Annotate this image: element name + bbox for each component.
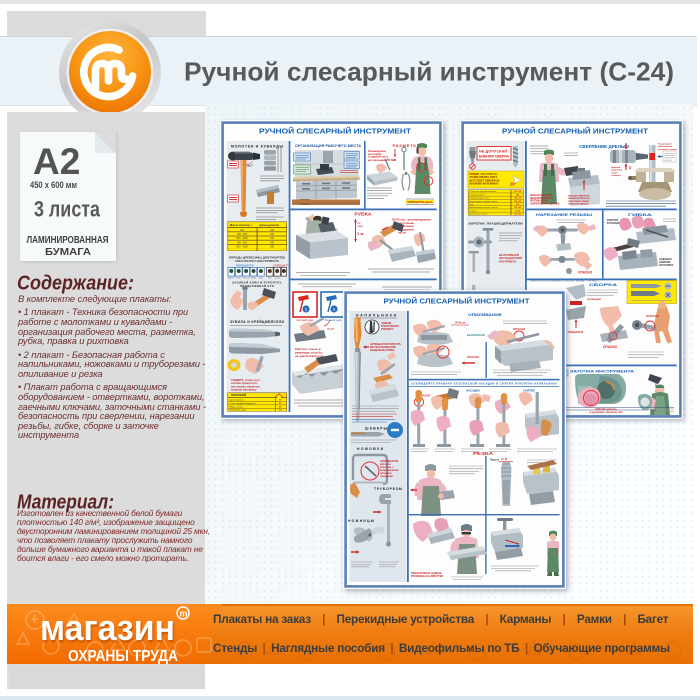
- svg-text:800 - 1000: 800 - 1000: [236, 237, 248, 240]
- svg-text:Кистевой удар: Кистевой удар: [297, 319, 314, 322]
- svg-text:МОЛОТКИ И КУВАЛДЫ: МОЛОТКИ И КУВАЛДЫ: [231, 145, 283, 149]
- svg-text:116-118: 116-118: [514, 191, 522, 193]
- svg-text:СЛЕСАРНОГО ИНСТРУМЕНТА: СЛЕСАРНОГО ИНСТРУМЕНТА: [235, 259, 280, 263]
- svg-text:Локтевой удар: Локтевой удар: [325, 319, 342, 322]
- svg-text:ОПАСНО: ОПАСНО: [467, 355, 480, 359]
- svg-text:Нержавеющая сталь: Нержавеющая сталь: [470, 198, 489, 200]
- svg-text:в рукавицах, перчатках или: в рукавицах, перчатках или: [590, 411, 623, 414]
- svg-text:полотном с: полотном с: [380, 467, 394, 469]
- svg-text:Масса молотка, г: Масса молотка, г: [230, 223, 253, 227]
- svg-text:Стальное литьё: Стальное литьё: [470, 194, 486, 196]
- svg-text:ВЫПОЛНЯЙ: ВЫПОЛНЯЙ: [231, 394, 246, 397]
- svg-text:ЗАТОЧКА ИНСТРУМЕНТА: ЗАТОЧКА ИНСТРУМЕНТА: [570, 370, 634, 374]
- svg-text:Алюминиевые сплавы, баббит: Алюминиевые сплавы, баббит: [470, 206, 499, 209]
- svg-text:320: 320: [270, 233, 275, 236]
- svg-text:БУМАГА: БУМАГА: [45, 246, 91, 258]
- svg-text:ЛАМИНИРОВАННАЯ: ЛАМИНИРОВАННАЯ: [27, 234, 109, 246]
- svg-text:НЕ ДОПУСКАЙ: НЕ ДОПУСКАЙ: [479, 150, 507, 154]
- svg-text:90°: 90°: [247, 163, 253, 168]
- svg-text:ИЛИ ПЛОХО ЗАКРЕ-: ИЛИ ПЛОХО ЗАКРЕ-: [568, 200, 590, 203]
- svg-text:ЗАПРЕЩАЕТСЯ: ЗАПРЕЩАЕТСЯ: [273, 265, 291, 268]
- svg-text:ТРУБОРЕЗЫ: ТРУБОРЕЗЫ: [374, 487, 402, 491]
- svg-text:РАБОТАЙ: РАБОТАЙ: [607, 219, 618, 222]
- svg-text:НОЖОВКИ: НОЖОВКИ: [357, 447, 384, 451]
- svg-text:НАРЕЗАНИЕ РЕЗЬБЫ: НАРЕЗАНИЕ РЕЗЬБЫ: [536, 213, 592, 217]
- svg-text:НЕЗАКРЕПЛЕННУЮ: НЕЗАКРЕПЛЕННУЮ: [530, 197, 553, 200]
- svg-text:ВОРОТКИ, ПЛАШКОДЕРЖАТЕЛИ: ВОРОТКИ, ПЛАШКОДЕРЖАТЕЛИ: [469, 222, 524, 226]
- svg-text:Не допускай: Не допускай: [658, 143, 672, 146]
- svg-text:Ручной слесарный инструмент (С: Ручной слесарный инструмент (С-24): [184, 57, 674, 87]
- svg-text:выкрошенными: выкрошенными: [380, 470, 399, 472]
- svg-text:Магниевые сплавы: Магниевые сплавы: [470, 213, 488, 215]
- svg-text:ЗАПРЕЩАЕТСЯ ударять: ЗАПРЕЩАЕТСЯ ударять: [407, 201, 434, 204]
- svg-text:450 х 600 мм: 450 х 600 мм: [30, 180, 77, 191]
- svg-text:люнет: люнет: [611, 172, 619, 174]
- svg-text:НОЖНИЦЫ: НОЖНИЦЫ: [348, 519, 374, 523]
- svg-text:Надевай: Надевай: [611, 166, 621, 169]
- svg-text:10-15: 10-15: [501, 458, 508, 461]
- svg-text:до пальцев 20 мм: до пальцев 20 мм: [368, 158, 397, 162]
- svg-text:Граб: Граб: [259, 277, 263, 279]
- svg-text:СБОРКА: СБОРКА: [589, 282, 617, 287]
- svg-text:ШАВЕРЫ: ШАВЕРЫ: [365, 427, 388, 431]
- svg-text:РУБКА: РУБКА: [355, 212, 372, 217]
- svg-text:БЕЗОПАСНО: БЕЗОПАСНО: [467, 333, 486, 337]
- svg-text:ЗАПРЕЩАЕТСЯ РАБОТАТЬ: ЗАПРЕЩАЕТСЯ РАБОТАТЬ: [370, 343, 401, 346]
- svg-text:650: 650: [270, 246, 275, 249]
- svg-text:Содержание:: Содержание:: [17, 273, 134, 295]
- svg-text:А2: А2: [33, 141, 80, 182]
- svg-text:Кизил: Кизил: [251, 277, 256, 279]
- svg-text:РЕЗКА: РЕЗКА: [473, 451, 494, 456]
- svg-text:ЗАПРЕЩАЕТСЯ: ЗАПРЕЩАЕТСЯ: [380, 460, 398, 463]
- svg-text:РУЧНОЙ СЛЕСАРНЫЙ ИНСТРУМЕНТ: РУЧНОЙ СЛЕСАРНЫЙ ИНСТРУМЕНТ: [259, 126, 411, 135]
- svg-text:трещинами: трещинами: [380, 476, 394, 478]
- svg-text:РУКОЯТКУ: РУКОЯТКУ: [381, 328, 394, 331]
- svg-text:ОРГАНИЗАЦИЯ РАБОЧЕГО МЕСТА: ОРГАНИЗАЦИЯ РАБОЧЕГО МЕСТА: [295, 144, 361, 148]
- svg-text:ВАЕМОМУ МАТЕРИАЛУ: ВАЕМОМУ МАТЕРИАЛУ: [470, 183, 500, 186]
- svg-text:Рекомендуемое: Рекомендуемое: [368, 151, 387, 153]
- svg-text:Сталь, без прочной вязкости: Сталь, без прочной вязкости: [470, 190, 497, 193]
- svg-text:магазин: магазин: [40, 607, 175, 648]
- svg-text:450: 450: [270, 241, 275, 244]
- svg-text:110-120: 110-120: [514, 213, 522, 215]
- svg-text:ниже: ниже: [358, 225, 364, 228]
- svg-text:70-90: 70-90: [515, 210, 521, 212]
- svg-text:110-120: 110-120: [514, 201, 522, 203]
- svg-text:образования: образования: [658, 145, 673, 148]
- svg-text:БЕЗ МЕТАЛЛИЧЕСКИХ: БЕЗ МЕТАЛЛИЧЕСКИХ: [370, 346, 396, 349]
- svg-text:ОПАСНО: ОПАСНО: [578, 271, 593, 275]
- svg-text:Алюминий, цинк: Алюминий, цинк: [230, 409, 247, 412]
- svg-text:ИНСТРУМЕНТ: ИНСТРУМЕНТ: [499, 260, 517, 263]
- svg-text:ОПАСНО: ОПАСНО: [603, 345, 618, 349]
- svg-text:Клён: Клён: [237, 277, 241, 279]
- svg-text:250: 250: [270, 229, 275, 232]
- svg-text:Берёза: Берёза: [228, 277, 235, 279]
- svg-text:ЗУБИЛА И КРЕЙЦМЕЙСЕЛИ: ЗУБИЛА И КРЕЙЦМЕЙСЕЛИ: [230, 320, 285, 324]
- svg-text:Пруток: Пруток: [490, 458, 500, 462]
- svg-text:РАЗМЕТКА: РАЗМЕТКА: [393, 143, 420, 148]
- svg-text:Медь, латунь: Медь, латунь: [230, 407, 244, 409]
- svg-text:Ель: Ель: [268, 277, 271, 279]
- svg-text:...РЕЩАЕТСЯ: ...РЕЩАЕТСЯ: [566, 330, 583, 334]
- svg-text:РУКАВИЦЫ НА ОБЕ РУКИ: РУКАВИЦЫ НА ОБЕ РУКИ: [411, 575, 443, 578]
- svg-text:расстояние: расстояние: [368, 154, 382, 156]
- svg-text:Рябина: Рябина: [243, 277, 250, 279]
- svg-text:каждому материалу: каждому материалу: [231, 389, 257, 392]
- svg-text:длинной стружки: длинной стружки: [658, 148, 678, 151]
- svg-text:ОПАСНО: ОПАСНО: [646, 314, 660, 318]
- svg-text:400 - 800: 400 - 800: [237, 241, 248, 244]
- svg-text:20-30 см: 20-30 см: [455, 322, 465, 325]
- svg-text:30-35°: 30-35°: [327, 327, 335, 331]
- svg-text:1 м: 1 м: [357, 231, 363, 236]
- svg-text:Чугун, бронза: Чугун, бронза: [230, 399, 245, 401]
- svg-text:СНЯТИЕ: СНЯТИЕ: [523, 389, 535, 393]
- svg-text:работать: работать: [380, 463, 391, 466]
- svg-text:НЕЛЬЗЯ СВЕРЛИТЬ: НЕЛЬЗЯ СВЕРЛИТЬ: [568, 196, 590, 198]
- svg-text:длина рукоятки: длина рукоятки: [259, 224, 280, 227]
- svg-text:НАПИЛЬНИКИ: НАПИЛЬНИКИ: [356, 314, 397, 318]
- svg-text:400 - 600: 400 - 600: [237, 233, 248, 236]
- svg-text:Сосна: Сосна: [274, 277, 280, 279]
- svg-text:360: 360: [270, 237, 275, 240]
- svg-text:3 листа: 3 листа: [34, 197, 101, 222]
- svg-text:ЗАКРЕПЛЕННУЮ ДЕТАЛЬ: ЗАКРЕПЛЕННУЮ ДЕТАЛЬ: [530, 202, 560, 205]
- svg-text:Сталь средней твердости: Сталь средней твердости: [230, 402, 257, 405]
- svg-text:СВЕРЛЕНИЕ ДРЕЛЬЮ: СВЕРЛЕНИЕ ДРЕЛЬЮ: [579, 144, 629, 149]
- svg-text:Медь, бронза, твердая латунь: Медь, бронза, твердая латунь: [470, 201, 498, 203]
- svg-text:и патрон: и патрон: [611, 175, 621, 177]
- svg-text:Свинец: Свинец: [470, 210, 478, 212]
- svg-text:ЗАГОТОВКУ: ЗАГОТОВКУ: [659, 264, 674, 267]
- svg-text:НАСАДКА: НАСАДКА: [466, 389, 480, 393]
- svg-text:НЕЛЬЗЯ СВЕРЛИТЬ: НЕЛЬЗЯ СВЕРЛИТЬ: [530, 195, 553, 197]
- svg-text:800 - 1600: 800 - 1600: [236, 246, 248, 249]
- svg-text:ОПАСНО: ОПАСНО: [513, 327, 526, 331]
- svg-text:ОХРАНЫ ТРУДА: ОХРАНЫ ТРУДА: [68, 648, 178, 664]
- svg-text:НЕЗАКРЕПЛЕННУЮ: НЕЗАКРЕПЛЕННУЮ: [568, 197, 590, 200]
- svg-text:116-118: 116-118: [514, 198, 522, 200]
- svg-text:зубьями и: зубьями и: [380, 472, 392, 475]
- svg-text:ВЕРТИКАЛЬНО: ВЕРТИКАЛЬНО: [530, 200, 548, 203]
- svg-text:РУЧНОЙ СЛЕСАРНЫЙ ИНСТРУМЕНТ: РУЧНОЙ СЛЕСАРНЫЙ ИНСТРУМЕНТ: [384, 296, 530, 305]
- svg-text:не пальцем: не пальцем: [587, 298, 601, 301]
- svg-text:РУЧНОЙ СЛЕСАРНЫЙ ИНСТРУМЕНТ: РУЧНОЙ СЛЕСАРНЫЙ ИНСТРУМЕНТ: [502, 126, 648, 135]
- svg-text:защитный: защитный: [611, 169, 623, 172]
- svg-text:ОПИЛИВАНИЕ: ОПИЛИВАНИЕ: [468, 312, 502, 317]
- svg-text:20°: 20°: [510, 182, 517, 187]
- svg-text:на одной левой руке: на одной левой руке: [295, 354, 324, 358]
- svg-text:СОБЛЮДАЙТЕ ПРАВИЛА БЕЗОПАСНОЙ: СОБЛЮДАЙТЕ ПРАВИЛА БЕЗОПАСНОЙ НАСАДКИ И …: [411, 382, 557, 386]
- svg-text:БАНДАЖНЫХ КОЛЕЦ: БАНДАЖНЫХ КОЛЕЦ: [370, 349, 395, 352]
- svg-text:ПЛЕННУЮ ДЕТАЛЬ: ПЛЕННУЮ ДЕТАЛЬ: [568, 203, 589, 206]
- svg-text:130-140: 130-140: [514, 206, 522, 209]
- svg-text:БИЕНИЯ СВЕРЛА: БИЕНИЯ СВЕРЛА: [479, 155, 509, 159]
- svg-text:m: m: [180, 609, 188, 619]
- svg-text:200: 200: [240, 229, 245, 232]
- svg-text:РАЗРЕШАЕТСЯ: РАЗРЕШАЕТСЯ: [236, 265, 254, 268]
